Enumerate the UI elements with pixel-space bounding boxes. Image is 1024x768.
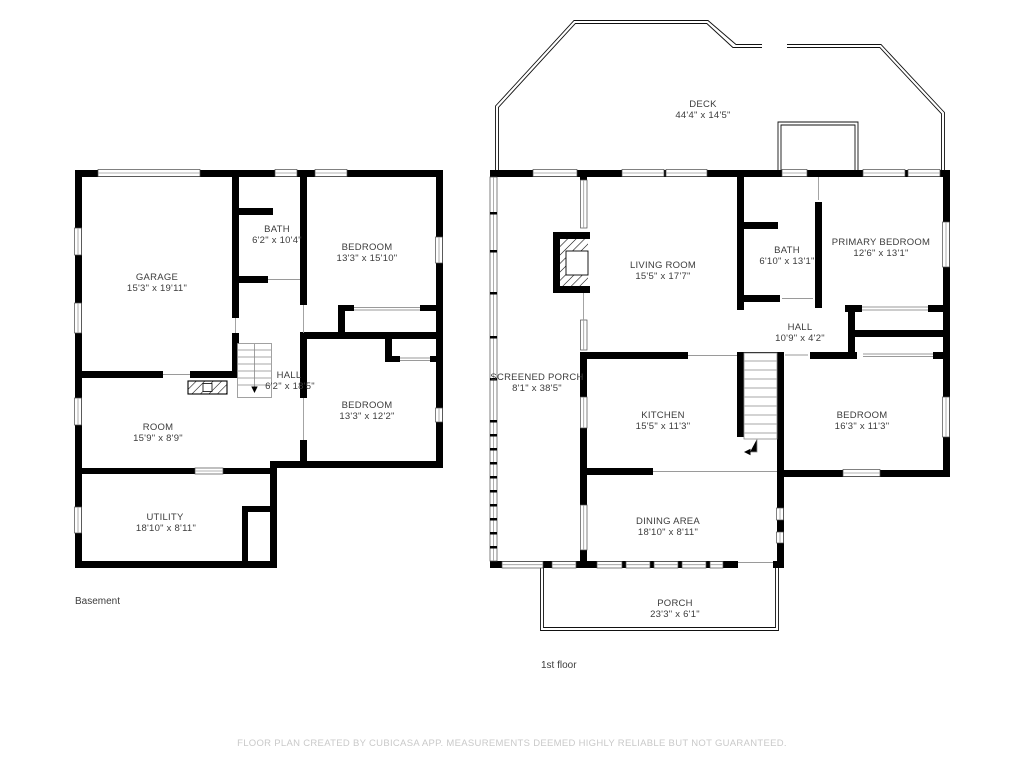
floorplan-canvas: GARAGE 15'3" x 19'11" BATH 6'2" x 10'4" … — [0, 0, 1024, 768]
room-dims-bedroom-first: 16'3" x 11'3" — [835, 421, 890, 432]
room-dims-living-room: 15'5" x 17'7" — [635, 271, 690, 282]
first-floor-plan: DECK 44'4" x 14'5" LIVING ROOM 15'5" x 1… — [490, 21, 950, 672]
room-label-living-room: LIVING ROOM — [630, 260, 696, 271]
room-label-bedroom1-basement: BEDROOM — [342, 242, 393, 253]
first-floor-label: 1st floor — [541, 660, 577, 671]
room-label-bath-basement: BATH — [264, 224, 290, 235]
room-label-deck: DECK — [689, 99, 717, 110]
room-dims-room: 15'9" x 8'9" — [133, 433, 183, 444]
basement-plan: GARAGE 15'3" x 19'11" BATH 6'2" x 10'4" … — [75, 170, 444, 608]
floorplan-page: GARAGE 15'3" x 19'11" BATH 6'2" x 10'4" … — [0, 0, 1024, 768]
room-label-dining-area: DINING AREA — [636, 516, 700, 527]
fireplace — [553, 232, 590, 293]
room-dims-kitchen: 15'5" x 11'3" — [636, 421, 691, 432]
room-label-screened-porch: SCREENED PORCH — [490, 372, 583, 383]
room-dims-utility: 18'10" x 8'11" — [136, 523, 196, 534]
first-floor-room-labels: DECK 44'4" x 14'5" LIVING ROOM 15'5" x 1… — [490, 99, 930, 620]
room-dims-bath-basement: 6'2" x 10'4" — [252, 235, 302, 246]
room-label-primary-bedroom: PRIMARY BEDROOM — [832, 237, 930, 248]
first-floor-stairs — [744, 353, 777, 455]
screened-porch-screen-wall — [490, 177, 497, 561]
room-dims-hall-basement: 6'2" x 18'5" — [265, 381, 315, 392]
room-dims-bedroom1-basement: 13'3" x 15'10" — [337, 253, 398, 264]
room-dims-bedroom2-basement: 13'3" x 12'2" — [339, 411, 394, 422]
room-label-kitchen: KITCHEN — [641, 410, 684, 421]
room-dims-bath-first: 6'10" x 13'1" — [759, 256, 814, 267]
room-dims-hall-first: 10'9" x 4'2" — [775, 333, 825, 344]
room-dims-deck: 44'4" x 14'5" — [675, 110, 730, 121]
room-dims-garage: 15'3" x 19'11" — [127, 283, 187, 294]
room-label-garage: GARAGE — [136, 272, 178, 283]
footer-disclaimer: FLOOR PLAN CREATED BY CUBICASA APP. MEAS… — [237, 738, 787, 749]
room-dims-primary-bedroom: 12'6" x 13'1" — [853, 248, 908, 259]
deck-outline — [496, 21, 945, 171]
room-dims-screened-porch: 8'1" x 38'5" — [512, 383, 562, 394]
first-floor-windows — [502, 170, 950, 569]
room-label-utility: UTILITY — [146, 512, 184, 523]
room-label-porch: PORCH — [657, 598, 693, 609]
basement-utility-fixture — [188, 381, 227, 394]
room-dims-dining-area: 18'10" x 8'11" — [638, 527, 698, 538]
stairs-direction-arrow — [744, 449, 751, 455]
room-label-bedroom2-basement: BEDROOM — [342, 400, 393, 411]
room-label-hall-first: HALL — [788, 322, 813, 333]
room-dims-porch: 23'3" x 6'1" — [650, 609, 700, 620]
first-floor-walls — [490, 170, 950, 568]
room-label-room: ROOM — [143, 422, 174, 433]
basement-floor-label: Basement — [75, 596, 120, 607]
room-label-bath-first: BATH — [774, 245, 800, 256]
room-label-hall-basement: HALL — [277, 370, 302, 381]
room-label-bedroom-first: BEDROOM — [837, 410, 888, 421]
